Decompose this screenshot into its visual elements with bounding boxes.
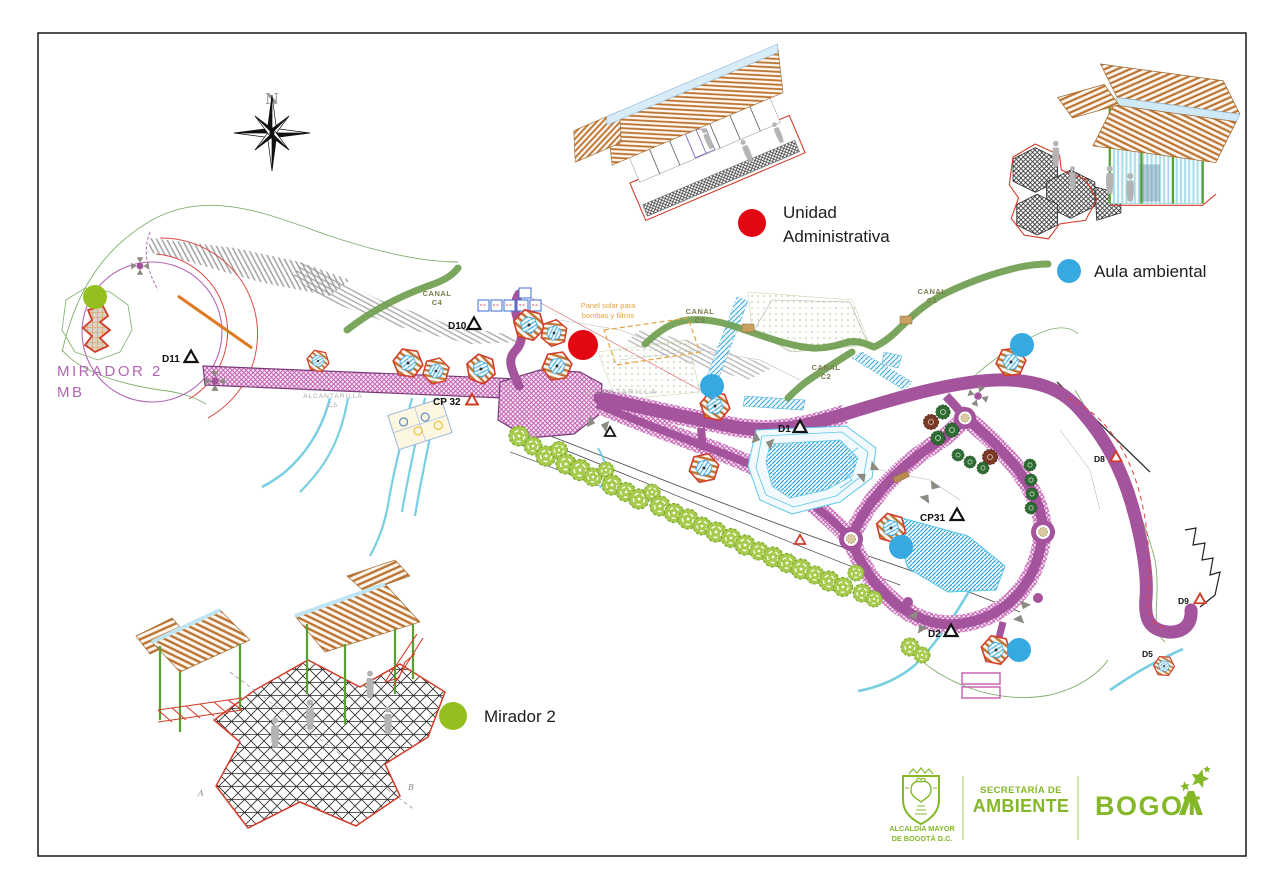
legend-dot-unidad	[738, 209, 766, 237]
marker-cp31-label: CP31	[920, 513, 945, 524]
marker-d10-label: D10	[448, 321, 467, 332]
marker-d5-label: D5	[1142, 649, 1153, 659]
alcantarilla-label: ALCANTARILLA	[582, 389, 657, 396]
legend-dot-mirador	[439, 702, 467, 730]
aula-dot-plan-3	[889, 535, 913, 559]
canal-c1-label-line1: CANAL	[918, 287, 947, 296]
marker-d1-label: D1	[778, 424, 791, 435]
aula-dot-plan-1	[700, 374, 724, 398]
section-label-a: A	[197, 789, 204, 798]
marker-d2-label: D2	[928, 629, 941, 640]
canal-c3-label-line2: C3	[695, 316, 706, 325]
canal-c1-label-line2: C1	[927, 296, 938, 305]
plan-sheet: MIRADOR 2 MB CANAL C4 CANAL C3 CANAL C2 …	[0, 0, 1280, 895]
aula-dot-plan-4	[1007, 638, 1031, 662]
unidad-dot-plan	[568, 330, 598, 360]
legend-dot-aula	[1057, 259, 1081, 283]
alcaldia-label-line2: DE BOGOTÁ D.C.	[892, 834, 953, 843]
legend-label-mirador: Mirador 2	[484, 707, 556, 726]
alcaldia-label-line1: ALCALDÍA MAYOR	[889, 824, 955, 833]
legend-label-unidad-line1: Unidad	[783, 203, 837, 222]
canal-c3-label-line1: CANAL	[686, 307, 715, 316]
canal-c2-label-line1: CANAL	[812, 363, 841, 372]
secretaria-label-line2: AMBIENTE	[973, 796, 1069, 816]
marker-d11-label: D11	[162, 354, 180, 365]
section-label-b: B	[407, 783, 414, 792]
legend-label-unidad-line2: Administrativa	[783, 227, 890, 246]
canal-c2-label-line2: C2	[821, 372, 832, 381]
panel-solar-label-line1: Panel solar para	[581, 301, 636, 310]
panel-solar-label-line2: bombas y filtros	[582, 311, 635, 320]
mirador-dot-plan	[83, 285, 107, 309]
mirador-mb-label-line2: MB	[57, 384, 85, 401]
marker-d8-label: D8	[1094, 454, 1105, 464]
alcantarilla-c5-label-line1: ALCANTARILLA	[303, 393, 363, 400]
site-plan-drawing: MIRADOR 2 MB CANAL C4 CANAL C3 CANAL C2 …	[0, 0, 1280, 895]
marker-d9-label: D9	[1178, 596, 1189, 606]
secretaria-label-line1: SECRETARÍA DE	[980, 785, 1062, 796]
legend-label-aula: Aula ambiental	[1094, 262, 1206, 281]
alcantarilla-c5-label-line2: C5	[328, 402, 338, 409]
canal-c4-label-line1: CANAL	[423, 289, 452, 298]
marker-cp32-label: CP 32	[433, 397, 461, 408]
aula-dot-plan-2	[1010, 333, 1034, 357]
canal-c4-label-line2: C4	[432, 298, 443, 307]
mirador-mb-label-line1: MIRADOR 2	[57, 363, 163, 380]
